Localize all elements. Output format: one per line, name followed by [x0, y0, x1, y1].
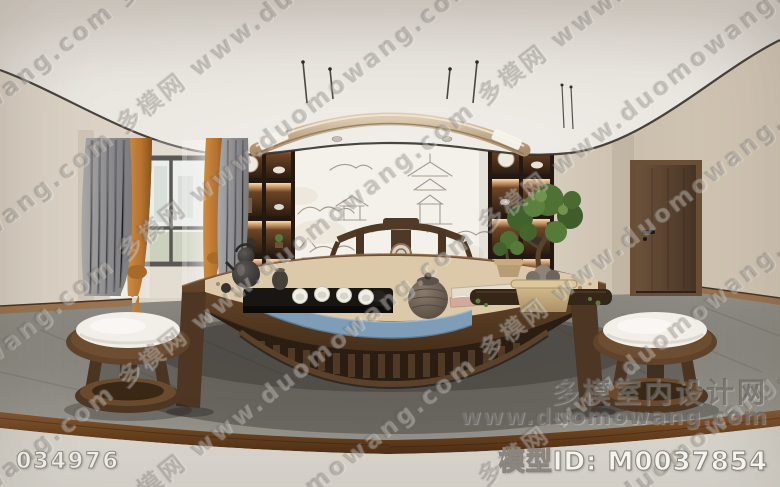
panorama-screenshot: www.duomowang.com 多模网 www.duomowang.com …: [0, 0, 780, 487]
door: [630, 160, 702, 296]
watermark-site-url: www.duomowang.com: [460, 404, 768, 430]
watermark-model-id: 模型ID: M0037854: [499, 441, 768, 478]
door-handle: [642, 230, 655, 234]
image-id: 034976: [16, 449, 120, 474]
